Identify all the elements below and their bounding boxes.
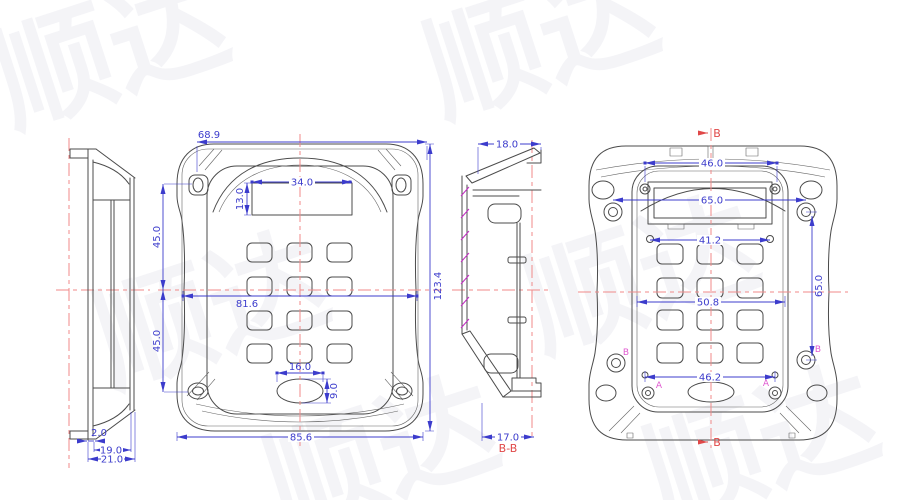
screw-boss-small <box>769 387 781 399</box>
keypad-button-hole <box>737 278 763 298</box>
screw-hole <box>773 187 777 191</box>
dim-label-section-top: 18.0 <box>496 140 518 151</box>
section-lower-boss <box>484 354 518 373</box>
side-back-plate <box>70 149 96 440</box>
keypad-button-hole <box>247 277 272 296</box>
screw-slot-bottom-left <box>193 387 204 395</box>
mount-oval-bottom-right <box>807 385 827 401</box>
screw-slot-top-left <box>193 178 203 192</box>
ext-lines-top-width <box>197 146 427 172</box>
screw-hole <box>773 391 778 396</box>
keypad-button-hole <box>737 310 763 330</box>
dim-label-keypad-top: 41.2 <box>699 236 721 247</box>
screw-hole <box>643 187 647 191</box>
display-clip-tab <box>738 224 754 229</box>
dim-label-display-width: 34.0 <box>291 178 313 189</box>
top-edge-tab <box>670 148 682 156</box>
tiny-screw <box>767 236 774 243</box>
section-title-label: B-B <box>499 442 518 455</box>
screw-slot-top-right <box>396 178 406 192</box>
section-upper-boss <box>488 204 521 223</box>
dim-label-bottom-span: 46.2 <box>699 373 721 384</box>
mount-oval-bottom-left <box>596 385 616 401</box>
dim-label-right-height: 65.0 <box>814 275 825 297</box>
screw-hole <box>612 359 621 368</box>
dim-point <box>349 181 352 184</box>
screw-hole <box>609 208 618 217</box>
dim-label-lip: 2.0 <box>91 428 107 439</box>
mount-oval-top-left <box>592 181 614 199</box>
dim-label-oval-height: 9.0 <box>329 383 340 399</box>
dim-point <box>322 372 325 375</box>
section-pcb-stem <box>517 223 520 378</box>
section-top-flange-hatched <box>466 148 540 183</box>
keypad-button-hole <box>657 343 683 363</box>
dim-label-lower-half: 45.0 <box>152 330 163 352</box>
keypad-button-hole <box>697 278 723 298</box>
bottom-foot <box>789 433 795 438</box>
keypad-button-hole <box>697 244 723 264</box>
screw-boss <box>604 203 622 221</box>
dim-point <box>644 162 647 165</box>
screw-boss-small <box>642 387 654 399</box>
keypad-button-hole <box>327 344 352 363</box>
dim-label-display-height: 13.0 <box>235 188 246 210</box>
screw-ref-label-a: A <box>656 381 663 391</box>
side-view: 2.0 19.0 21.0 <box>56 138 150 468</box>
keypad-button-hole <box>697 310 723 330</box>
section-left-wall <box>462 176 467 334</box>
dim-point <box>276 372 279 375</box>
dim-label-top-width: 68.9 <box>198 130 220 141</box>
screw-ref-label-b: B <box>623 348 629 358</box>
dim-label-overall-depth: 21.0 <box>101 455 123 466</box>
cad-drawing-sheet: 顺达 顺达 顺达 顺达 顺达 顺达 <box>0 0 900 500</box>
keypad-button-hole <box>657 310 683 330</box>
keypad-button-hole <box>657 278 683 298</box>
dim-label-inner-width: 50.8 <box>697 298 719 309</box>
dim-label-upper-half: 45.0 <box>152 226 163 248</box>
display-clip-tab <box>668 224 684 229</box>
dim-label-overall-width: 85.6 <box>290 433 312 444</box>
keypad-button-hole <box>737 244 763 264</box>
mount-oval-top-right <box>800 181 822 199</box>
bottom-foot <box>627 433 633 438</box>
section-cut-label-bottom: B <box>713 436 721 449</box>
screw-ref-label-b: B <box>815 345 821 355</box>
keypad-button-hole <box>697 343 723 363</box>
keypad-button-hole <box>327 277 352 296</box>
dim-point <box>182 295 185 298</box>
tiny-screw <box>647 236 654 243</box>
keypad-button-hole <box>327 311 352 330</box>
keypad-button-hole <box>657 244 683 264</box>
dim-label-window-span: 65.0 <box>701 196 723 207</box>
dim-label-screw-span: 46.0 <box>701 159 723 170</box>
keypad-technical-drawing: 2.0 19.0 21.0 <box>0 0 900 500</box>
keypad-button-hole <box>737 343 763 363</box>
dim-point <box>776 162 779 165</box>
section-view: 18.0 17.0 B-B <box>452 139 548 455</box>
keypad-button-hole <box>247 243 272 262</box>
section-bottom-flange-hatched <box>462 331 511 397</box>
section-cut-label-top: B <box>713 127 721 140</box>
top-edge-tab <box>746 148 758 156</box>
keypad-button-hole <box>247 311 272 330</box>
keypad-button-hole <box>327 243 352 262</box>
dim-label-inner-width: 81.6 <box>236 299 258 310</box>
back-view: B B 46.0 65.0 41.2 50.8 46.2 <box>578 127 848 449</box>
keypad-button-hole <box>247 344 272 363</box>
screw-ref-label-a: A <box>763 379 770 389</box>
dim-label-oval-width: 16.0 <box>289 362 311 373</box>
screw-slot-bottom-right <box>397 387 408 395</box>
screw-hole <box>646 391 651 396</box>
dim-label-overall-height: 123.4 <box>433 272 444 301</box>
front-view: 68.9 34.0 13.0 45.0 45.0 81.6 123.4 <box>152 130 444 446</box>
corner-gusset-lines <box>609 406 811 433</box>
side-housing-rails <box>93 178 134 410</box>
dim-point <box>416 295 419 298</box>
